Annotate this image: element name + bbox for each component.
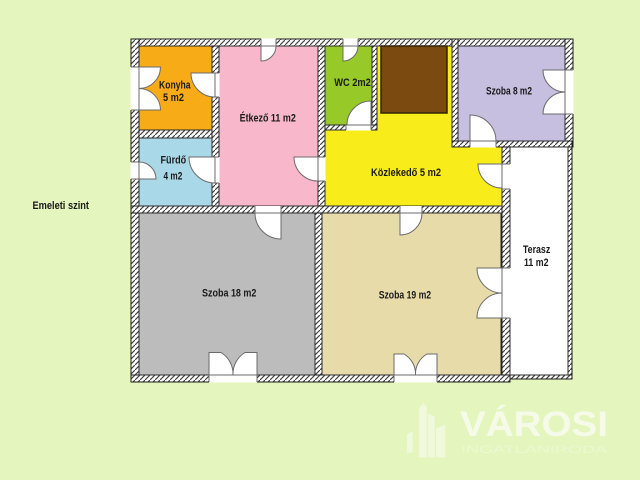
svg-text:Emeleti szint: Emeleti szint xyxy=(33,200,90,212)
svg-text:5 m2: 5 m2 xyxy=(163,92,184,104)
svg-text:Szoba 19 m2: Szoba 19 m2 xyxy=(379,290,431,302)
svg-text:Terasz: Terasz xyxy=(523,244,551,256)
svg-text:WC 2m2: WC 2m2 xyxy=(334,77,371,89)
svg-text:Konyha: Konyha xyxy=(159,80,191,92)
svg-text:INGATLANIRODA: INGATLANIRODA xyxy=(461,444,608,456)
svg-text:Szoba 18 m2: Szoba 18 m2 xyxy=(202,288,256,300)
svg-text:Fürdő: Fürdő xyxy=(161,155,187,167)
svg-text:VÁROSI: VÁROSI xyxy=(460,404,608,444)
svg-text:Közlekedő 5 m2: Közlekedő 5 m2 xyxy=(371,167,441,179)
svg-text:11 m2: 11 m2 xyxy=(524,257,549,269)
svg-text:Étkező 11 m2: Étkező 11 m2 xyxy=(240,112,296,125)
svg-text:4 m2: 4 m2 xyxy=(164,171,183,183)
svg-text:Szoba 8 m2: Szoba 8 m2 xyxy=(486,86,532,98)
